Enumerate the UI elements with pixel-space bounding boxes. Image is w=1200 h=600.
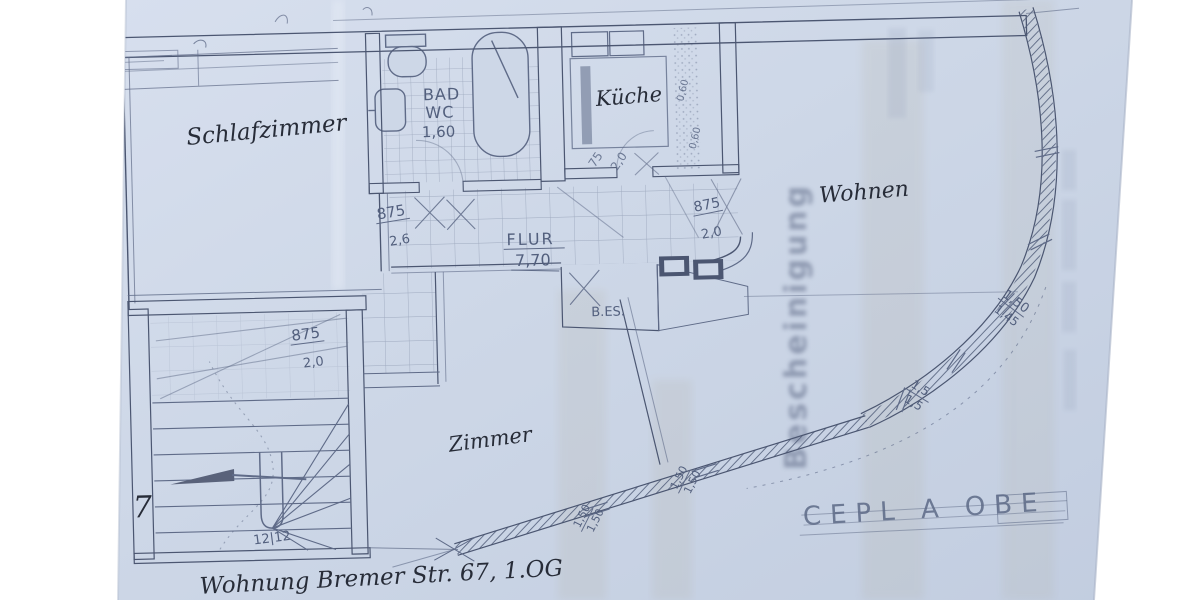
- floor-plan-photo: Bescheinigung: [0, 0, 1200, 600]
- bleedthrough-text: Bescheinigung: [779, 183, 814, 470]
- bad-label-1: BAD: [423, 84, 461, 104]
- toilet-cistern: [385, 34, 425, 47]
- bleedthrough-word: Bescheinigung: [779, 183, 814, 470]
- bad-label-2: WC: [425, 103, 454, 123]
- dim-stairs-h: 2,0: [302, 354, 324, 372]
- floor-plan-scan: Bescheinigung: [0, 0, 1200, 600]
- flur-label: FLUR: [506, 229, 555, 249]
- flur-size: 7,70: [515, 250, 551, 270]
- margin-note-7: 7: [133, 490, 154, 525]
- sink: [375, 89, 406, 132]
- bad-size: 1,60: [422, 122, 456, 141]
- bes-label: B.ES.: [591, 304, 625, 320]
- bathtub: [471, 32, 530, 157]
